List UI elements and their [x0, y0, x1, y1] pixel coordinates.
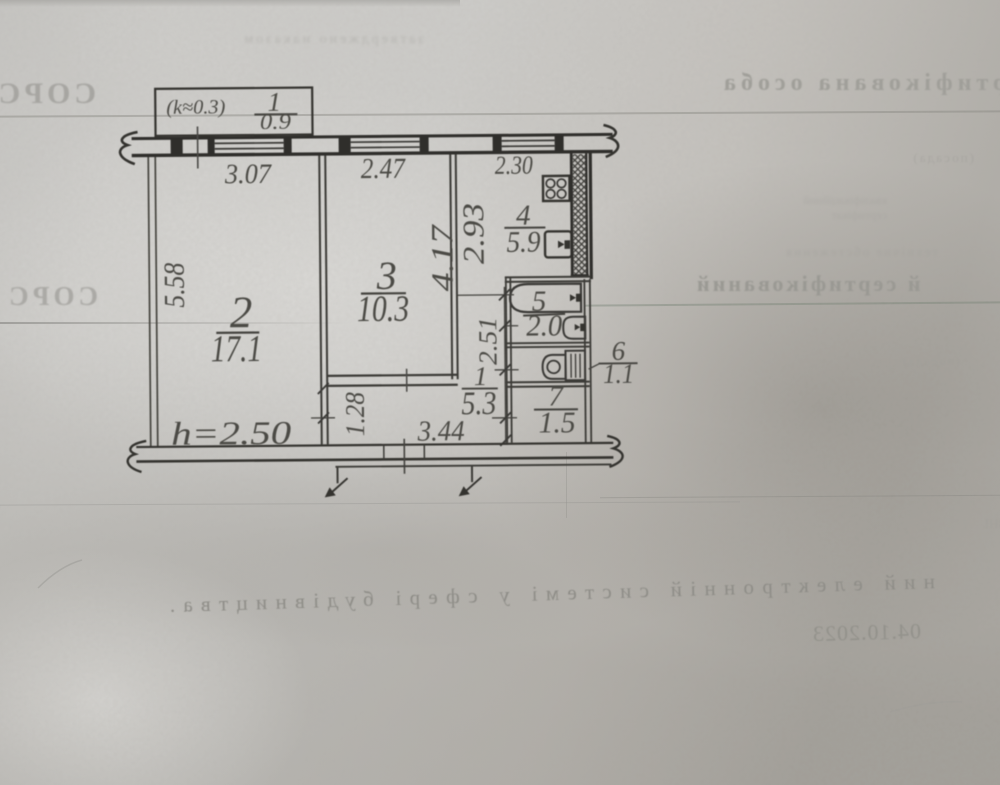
svg-text:2.47: 2.47 [361, 153, 407, 185]
svg-text:2.93: 2.93 [457, 203, 491, 264]
svg-text:1.5: 1.5 [538, 406, 575, 439]
svg-text:1.28: 1.28 [340, 392, 370, 437]
svg-text:2.0: 2.0 [526, 309, 562, 342]
svg-text:0.9: 0.9 [260, 109, 291, 134]
svg-text:5.58: 5.58 [159, 262, 191, 308]
svg-text:3.44: 3.44 [417, 415, 465, 447]
svg-text:1.1: 1.1 [603, 359, 634, 390]
svg-text:2.30: 2.30 [495, 151, 533, 180]
svg-text:3.07: 3.07 [224, 159, 272, 190]
svg-text:4.17: 4.17 [424, 223, 460, 291]
svg-text:17.1: 17.1 [211, 328, 262, 370]
svg-text:5.9: 5.9 [506, 226, 540, 259]
svg-text:(k≈0.3): (k≈0.3) [166, 96, 226, 119]
svg-text:5.3: 5.3 [461, 386, 496, 422]
svg-text:10.3: 10.3 [357, 289, 409, 330]
svg-text:2.51: 2.51 [473, 317, 502, 365]
